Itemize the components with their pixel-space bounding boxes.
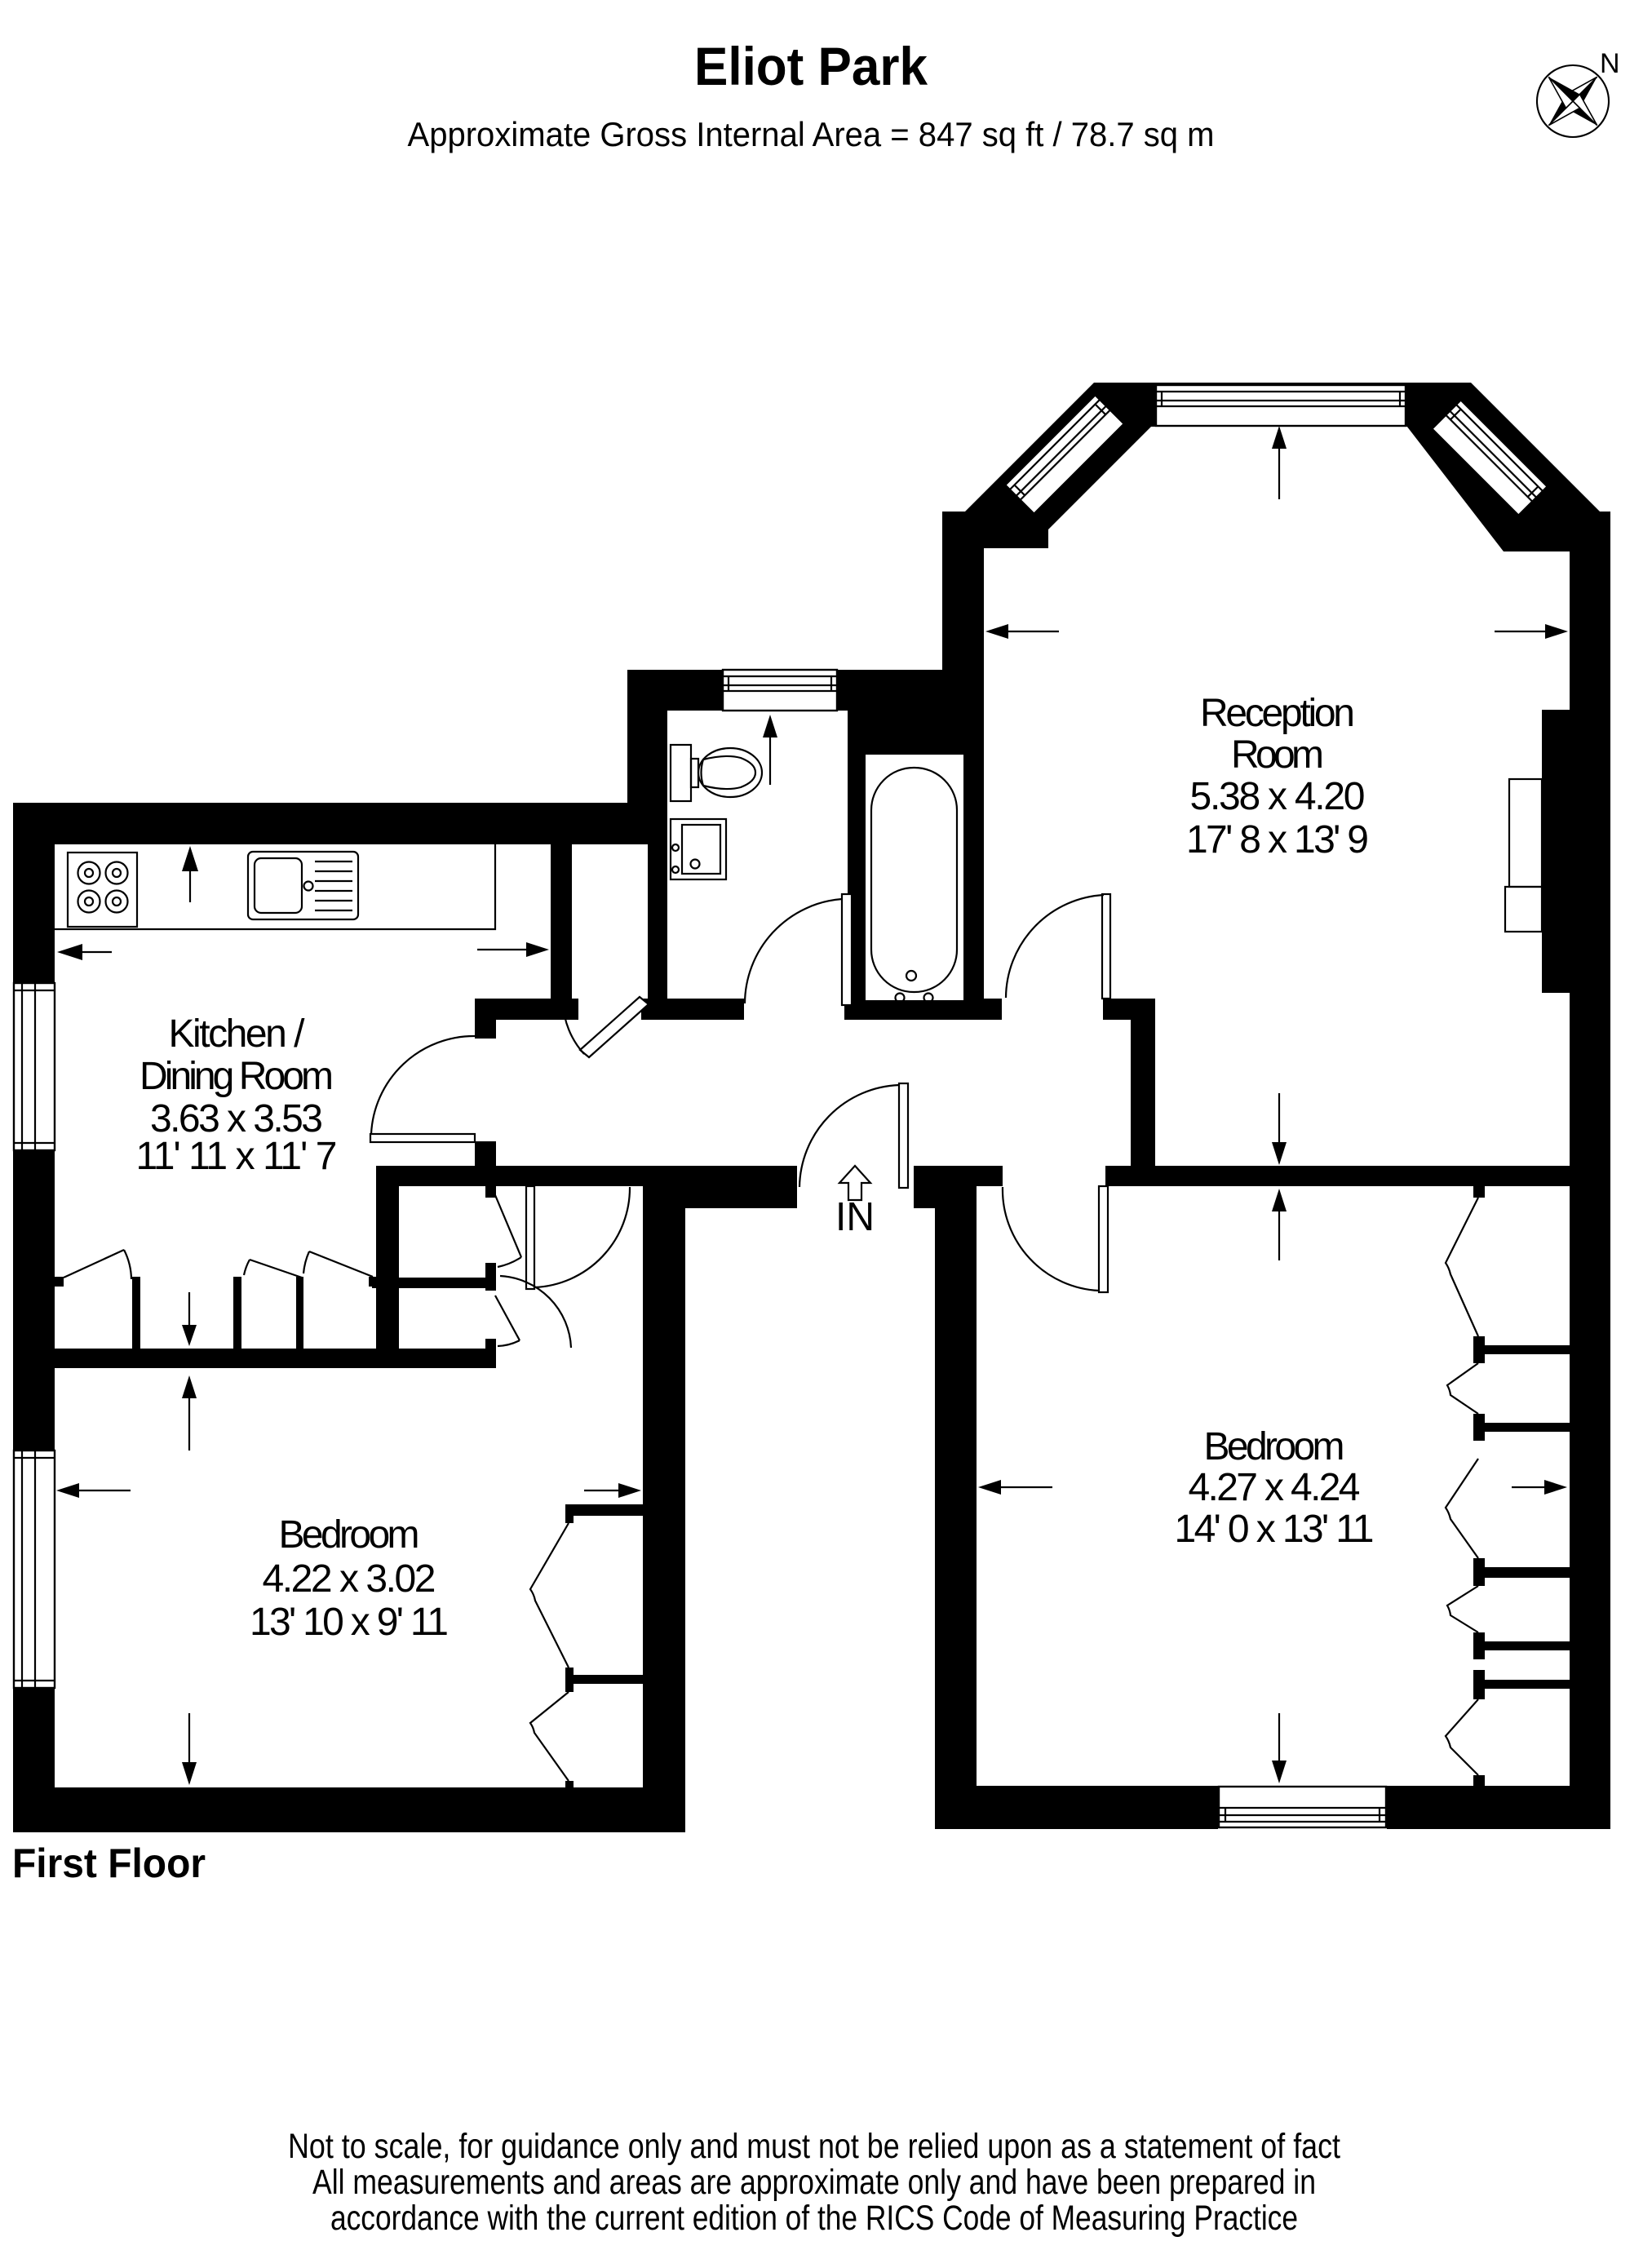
svg-text:Kitchen /: Kitchen /	[169, 1012, 306, 1056]
svg-text:Dining Room: Dining Room	[140, 1055, 334, 1098]
svg-text:N: N	[1600, 48, 1620, 79]
svg-text:Bedroom: Bedroom	[1204, 1425, 1345, 1468]
svg-text:4.27 x 4.24: 4.27 x 4.24	[1189, 1466, 1361, 1509]
svg-text:Approximate Gross Internal Are: Approximate Gross Internal Area = 847 sq…	[408, 115, 1215, 153]
svg-text:Not to scale, for guidance onl: Not to scale, for guidance only and must…	[288, 2127, 1340, 2166]
svg-text:17' 8 x 13' 9: 17' 8 x 13' 9	[1186, 818, 1369, 861]
svg-text:11' 11 x 11' 7: 11' 11 x 11' 7	[136, 1135, 338, 1178]
svg-text:Room: Room	[1231, 733, 1324, 777]
svg-text:Reception: Reception	[1200, 692, 1355, 735]
svg-text:13' 10 x 9' 11: 13' 10 x 9' 11	[250, 1601, 449, 1644]
svg-text:All measurements and areas are: All measurements and areas are approxima…	[312, 2163, 1316, 2202]
svg-text:accordance with the current ed: accordance with the current edition of t…	[330, 2199, 1298, 2238]
svg-text:5.38 x 4.20: 5.38 x 4.20	[1190, 775, 1366, 818]
svg-text:Eliot Park: Eliot Park	[694, 36, 928, 96]
svg-text:14' 0 x 13' 11: 14' 0 x 13' 11	[1175, 1508, 1375, 1551]
svg-text:4.22 x 3.02: 4.22 x 3.02	[263, 1557, 436, 1601]
svg-text:IN: IN	[835, 1195, 875, 1239]
svg-text:Bedroom: Bedroom	[279, 1513, 420, 1557]
svg-text:First Floor: First Floor	[12, 1840, 206, 1886]
